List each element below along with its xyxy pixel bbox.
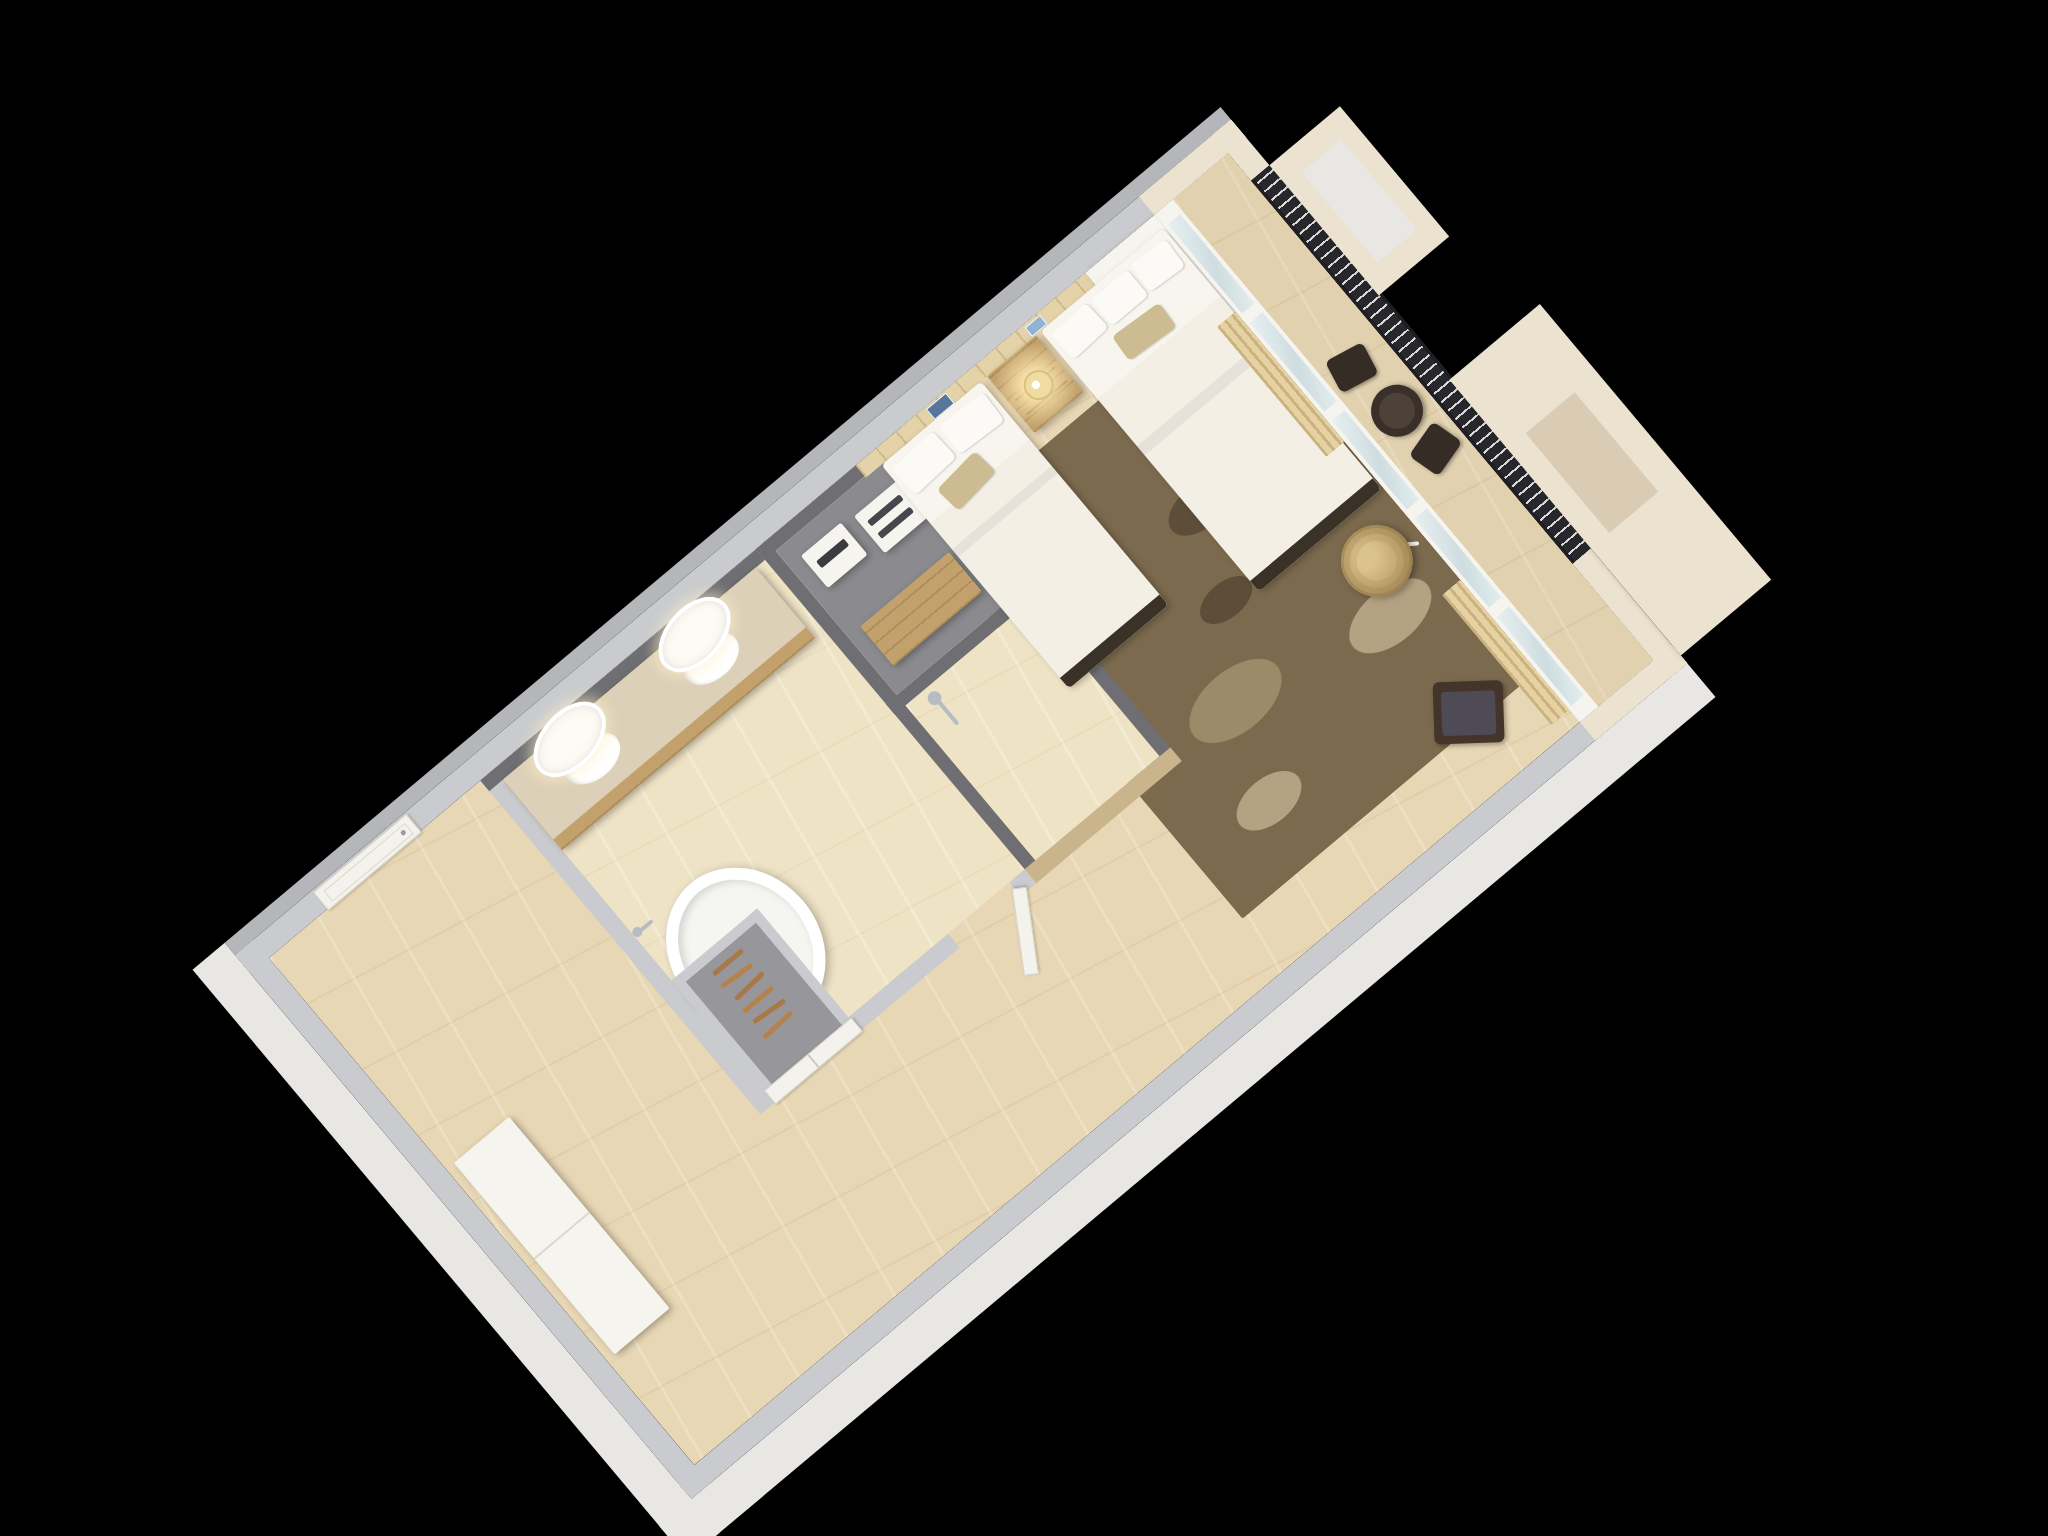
lounge-chair (1433, 680, 1505, 744)
black-background (0, 0, 2048, 1536)
closet-door-seam (808, 1054, 820, 1068)
shoe-cabinet-seam (534, 1212, 590, 1260)
balcony-table-top (1372, 385, 1423, 436)
lounge-chair-cushion (1441, 690, 1497, 736)
safe-slot (816, 538, 849, 568)
floorplan-3d (235, 119, 1687, 1499)
